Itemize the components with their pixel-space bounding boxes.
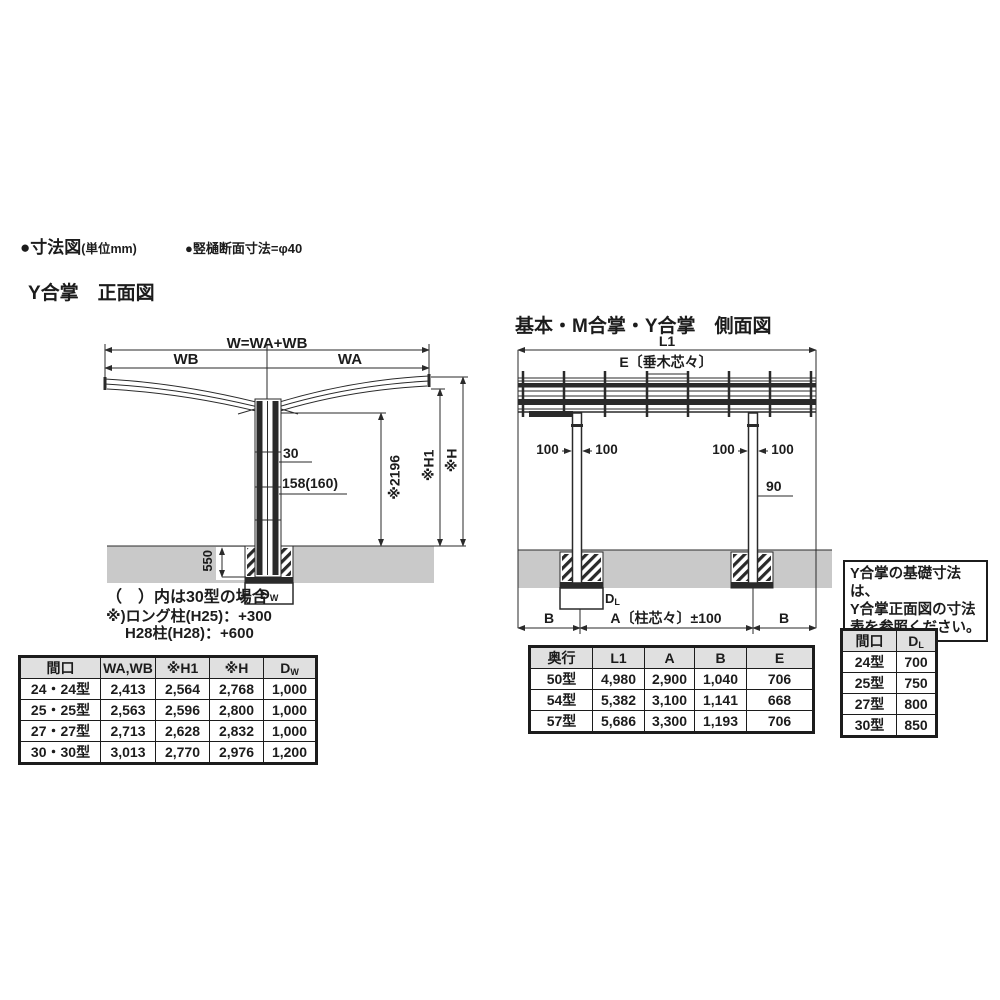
table-header-row: 間口 DL [843,631,936,652]
front-dimension-table: 間口 WA,WB ※H1 ※H DW 24・24型2,4132,5642,768… [18,655,318,765]
col-dw: DW [264,658,316,679]
dim-2196: ※2196 [388,442,403,512]
table-row: 57型5,6863,3001,193706 [531,711,813,732]
dim-100-a: 100 [534,443,561,457]
dim-w-total: W=WA+WB [197,336,337,352]
cell: 5,382 [593,690,645,711]
dim-wb: WB [156,352,216,368]
col-e: E [747,648,813,669]
cell: 668 [747,690,813,711]
cell: 1,193 [695,711,747,732]
col-dl-sub: L [918,640,924,650]
col-dw-main: D [280,660,290,676]
cell: 1,000 [264,679,316,700]
cell: 25型 [843,673,897,694]
front-note-1: （ ）内は30型の場合 [106,590,268,607]
downpipe-note: ●竪樋断面寸法=φ40 [185,238,302,257]
dim-158: 158(160) [282,476,338,491]
cell: 50型 [531,669,593,690]
dim-e: E〔垂木芯々〕 [586,355,746,370]
table-row: 50型4,9802,9001,040706 [531,669,813,690]
cell: 30・30型 [21,742,101,763]
cell: 2,976 [210,742,264,763]
drawing-linework [0,0,1000,1000]
dim-100-d: 100 [769,443,796,457]
cell: 54型 [531,690,593,711]
cell: 4,980 [593,669,645,690]
cell: 30型 [843,715,897,736]
cell: 2,900 [645,669,695,690]
side-view-drawing [518,350,832,634]
table-row: 25・25型2,5632,5962,8001,000 [21,700,316,721]
cell: 3,100 [645,690,695,711]
cell: 850 [897,715,936,736]
table-row: 30・30型3,0132,7702,9761,200 [21,742,316,763]
table-row: 30型850 [843,715,936,736]
cell: 2,713 [101,721,156,742]
cell: 750 [897,673,936,694]
cell: 24型 [843,652,897,673]
cell: 27型 [843,694,897,715]
cell: 27・27型 [21,721,101,742]
cell: 1,141 [695,690,747,711]
cell: 25・25型 [21,700,101,721]
cell: 24・24型 [21,679,101,700]
dim-l1: L1 [637,334,697,349]
table-row: 27・27型2,7132,6282,8321,000 [21,721,316,742]
sheet-title-unit: (単位mm) [81,242,137,256]
note-line-2: Y合掌正面図の寸法 [850,601,981,619]
cell: 706 [747,711,813,732]
cell: 1,040 [695,669,747,690]
table-row: 24型700 [843,652,936,673]
table-row: 27型800 [843,694,936,715]
dim-h1: ※H1 [422,440,437,490]
col-h: ※H [210,658,264,679]
cell: 5,686 [593,711,645,732]
cell: 3,013 [101,742,156,763]
cell: 2,596 [156,700,210,721]
col-h1: ※H1 [156,658,210,679]
col-dl: DL [897,631,936,652]
side-dimension-table: 奥行 L1 A B E 50型4,9802,9001,040706 54型5,3… [528,645,815,734]
table-row: 54型5,3823,1001,141668 [531,690,813,711]
dim-b-left: B [534,611,564,626]
cell: 1,000 [264,721,316,742]
front-note-3: H28柱(H28)：+600 [125,626,254,642]
dim-100-c: 100 [710,443,737,457]
col-maguchi: 間口 [21,658,101,679]
cell: 3,300 [645,711,695,732]
cell: 2,768 [210,679,264,700]
col-okuyuki: 奥行 [531,648,593,669]
dim-dl: DL [605,592,620,607]
col-dw-sub: W [290,667,299,677]
footing-dimension-table: 間口 DL 24型700 25型750 27型800 30型850 [840,628,938,738]
col-maguchi: 間口 [843,631,897,652]
cell: 2,800 [210,700,264,721]
col-a: A [645,648,695,669]
table-row: 25型750 [843,673,936,694]
dim-100-b: 100 [593,443,620,457]
dim-dw-sub: W [270,593,279,603]
front-view-drawing [105,344,468,604]
front-view-title: Y合掌 正面図 [28,278,155,305]
cell: 2,832 [210,721,264,742]
cell: 706 [747,669,813,690]
cell: 2,413 [101,679,156,700]
cell: 1,200 [264,742,316,763]
front-note-2: ※)ロング柱(H25)：+300 [106,609,272,625]
dim-b-right: B [769,611,799,626]
cell: 800 [897,694,936,715]
col-dl-main: D [908,633,918,649]
dim-550: 550 [201,539,215,583]
cell: 2,564 [156,679,210,700]
dimension-sheet: ●寸法図(単位mm) ●竪樋断面寸法=φ40 Y合掌 正面図 W=WA+WB W… [0,0,1000,1000]
dim-90: 90 [766,479,782,494]
dim-30: 30 [283,446,299,461]
note-line-1: Y合掌の基礎寸法は、 [850,565,981,601]
col-wawb: WA,WB [101,658,156,679]
dim-dl-sub: L [614,597,620,607]
table-row: 24・24型2,4132,5642,7681,000 [21,679,316,700]
dim-dl-main: D [605,591,614,606]
cell: 2,770 [156,742,210,763]
col-l1: L1 [593,648,645,669]
cell: 57型 [531,711,593,732]
dim-a: A〔柱芯々〕±100 [596,611,736,626]
cell: 700 [897,652,936,673]
dim-wa: WA [320,352,380,368]
sheet-title: ●寸法図(単位mm) [20,233,137,258]
cell: 2,628 [156,721,210,742]
table-header-row: 奥行 L1 A B E [531,648,813,669]
sheet-title-main: ●寸法図 [20,238,81,257]
cell: 1,000 [264,700,316,721]
dim-h: ※H [445,438,460,482]
col-b: B [695,648,747,669]
cell: 2,563 [101,700,156,721]
table-header-row: 間口 WA,WB ※H1 ※H DW [21,658,316,679]
